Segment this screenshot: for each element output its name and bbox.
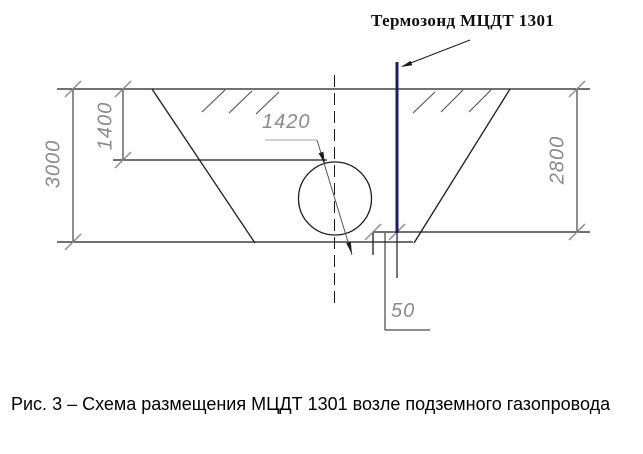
dim-50-label: 50	[391, 300, 415, 323]
trench-cross-section-drawing	[0, 0, 643, 380]
figure-caption: Рис. 3 – Схема размещения МЦДТ 1301 возл…	[11, 394, 643, 415]
ground-hatch-mark	[469, 90, 491, 112]
ground-hatch-group	[202, 90, 491, 114]
dim-1400-label: 1400	[95, 102, 118, 151]
trench-right-wall-line	[414, 89, 510, 243]
ground-hatch-mark	[229, 91, 252, 113]
diameter-arrowhead-top	[319, 152, 325, 164]
ground-hatch-mark	[441, 90, 463, 112]
figure-canvas: Термозонд МЦДТ 1301 3000 1400 1420 2800 …	[0, 0, 643, 454]
dim-1420-label: 1420	[262, 111, 311, 134]
dim-3000-label: 3000	[43, 140, 66, 189]
trench-left-wall-line	[152, 89, 255, 243]
ground-hatch-mark	[202, 90, 225, 112]
probe-leader-arrowhead	[401, 61, 412, 67]
probe-leader-line	[403, 40, 470, 66]
main-lines-group	[57, 40, 590, 330]
probe-label: Термозонд МЦДТ 1301	[371, 11, 554, 31]
dim-2800-label: 2800	[547, 136, 570, 185]
diameter-arrowhead-bottom	[346, 242, 352, 254]
ground-hatch-mark	[413, 92, 435, 113]
